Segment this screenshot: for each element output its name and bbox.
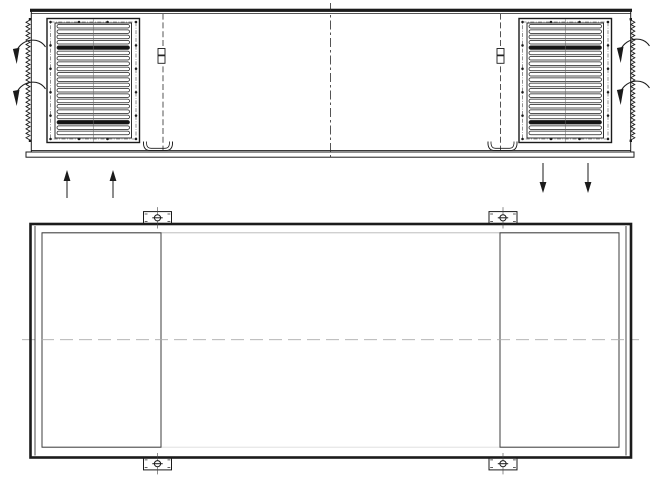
air-inlet-arrow: [110, 170, 117, 198]
channel-outer: [144, 142, 173, 151]
frame-bolt: [135, 44, 138, 47]
latch-knuckle: [497, 56, 504, 64]
arrow-head: [540, 182, 547, 193]
base-rail: [26, 152, 634, 157]
frame-bolt: [550, 21, 553, 24]
curl-head: [617, 89, 624, 105]
frame-bolt: [49, 44, 52, 47]
frame-bolt: [49, 138, 52, 141]
frame-bolt: [135, 138, 138, 141]
airflow-curl-arrow: [13, 82, 46, 106]
frame-bolt: [521, 114, 524, 117]
frame-bolt: [578, 21, 581, 24]
curl-tail: [621, 39, 650, 49]
bottom-plan-view: [22, 207, 639, 474]
frame-bolt: [135, 21, 138, 24]
frame-bolt: [607, 68, 610, 71]
air-inlet-arrow: [64, 170, 71, 198]
frame-bolt: [106, 138, 109, 141]
casing-outline: [31, 224, 632, 458]
airflow-curl-arrow: [617, 39, 650, 63]
arrow-head: [64, 170, 71, 181]
frame-bolt: [607, 21, 610, 24]
frame-bolt: [521, 44, 524, 47]
door-latch-right: [497, 49, 504, 64]
curl-head: [13, 48, 20, 64]
flex-collar-left: [26, 18, 31, 142]
collar-end: [630, 18, 632, 20]
floor-channel-left: [144, 142, 173, 151]
channel-inner: [147, 142, 170, 149]
frame-bolt: [106, 21, 109, 24]
frame-bolt: [49, 114, 52, 117]
intake-louver-panel-left: [47, 19, 140, 143]
frame-bolt: [135, 91, 138, 94]
frame-bolt: [607, 138, 610, 141]
door-latch-left: [158, 49, 165, 64]
frame-bolt: [78, 21, 81, 24]
collar-end: [630, 140, 632, 142]
frame-bolt: [135, 68, 138, 71]
arrow-head: [585, 182, 592, 193]
air-outlet-arrow: [540, 163, 547, 193]
frame-bolt: [78, 138, 81, 141]
zigzag-strip: [26, 20, 30, 140]
frame-bolt: [607, 44, 610, 47]
roof-cap-plate: [30, 9, 632, 12]
arrow-head: [110, 170, 117, 181]
collar-end: [29, 18, 31, 20]
front-elevation-view: [13, 3, 650, 198]
frame-bolt: [49, 68, 52, 71]
frame-bolt: [607, 114, 610, 117]
floor-channel-right: [488, 142, 517, 151]
frame-bolt: [521, 91, 524, 94]
roof-cap: [30, 9, 632, 14]
frame-bolt: [135, 114, 138, 117]
air-outlet-arrow: [585, 163, 592, 193]
frame-bolt: [607, 91, 610, 94]
zigzag-strip: [631, 20, 635, 140]
curl-head: [617, 47, 624, 63]
latch-knuckle: [158, 56, 165, 64]
channel-inner: [491, 142, 514, 149]
intake-louver-panel-right: [519, 19, 612, 143]
hvac-unit-technical-drawing: [0, 0, 660, 483]
frame-bolt: [578, 138, 581, 141]
frame-bolt: [49, 21, 52, 24]
frame-bolt: [550, 138, 553, 141]
curl-head: [13, 90, 20, 106]
frame-bolt: [521, 68, 524, 71]
frame-bolt: [521, 21, 524, 24]
channel-outer: [488, 142, 517, 151]
drawing-canvas: [0, 0, 660, 483]
frame-bolt: [49, 91, 52, 94]
collar-end: [29, 140, 31, 142]
curl-tail: [621, 81, 650, 91]
latch-knuckle: [497, 49, 504, 56]
frame-bolt: [521, 138, 524, 141]
latch-knuckle: [158, 49, 165, 56]
